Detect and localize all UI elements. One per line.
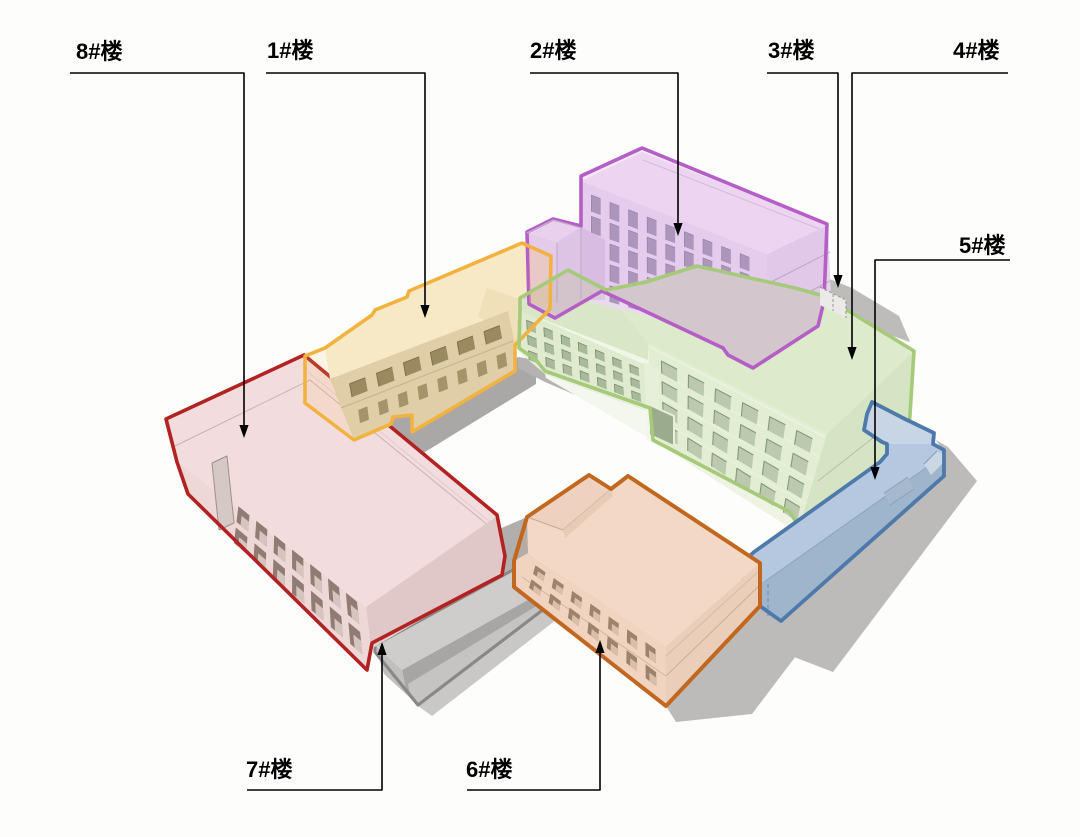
svg-text:2#楼: 2#楼 — [530, 38, 576, 63]
svg-text:7#楼: 7#楼 — [246, 757, 292, 782]
svg-text:3#楼: 3#楼 — [768, 38, 814, 63]
svg-text:8#楼: 8#楼 — [76, 39, 122, 64]
svg-text:5#楼: 5#楼 — [959, 233, 1005, 258]
svg-text:6#楼: 6#楼 — [466, 757, 512, 782]
svg-text:1#楼: 1#楼 — [267, 38, 313, 63]
svg-text:4#楼: 4#楼 — [953, 38, 999, 63]
